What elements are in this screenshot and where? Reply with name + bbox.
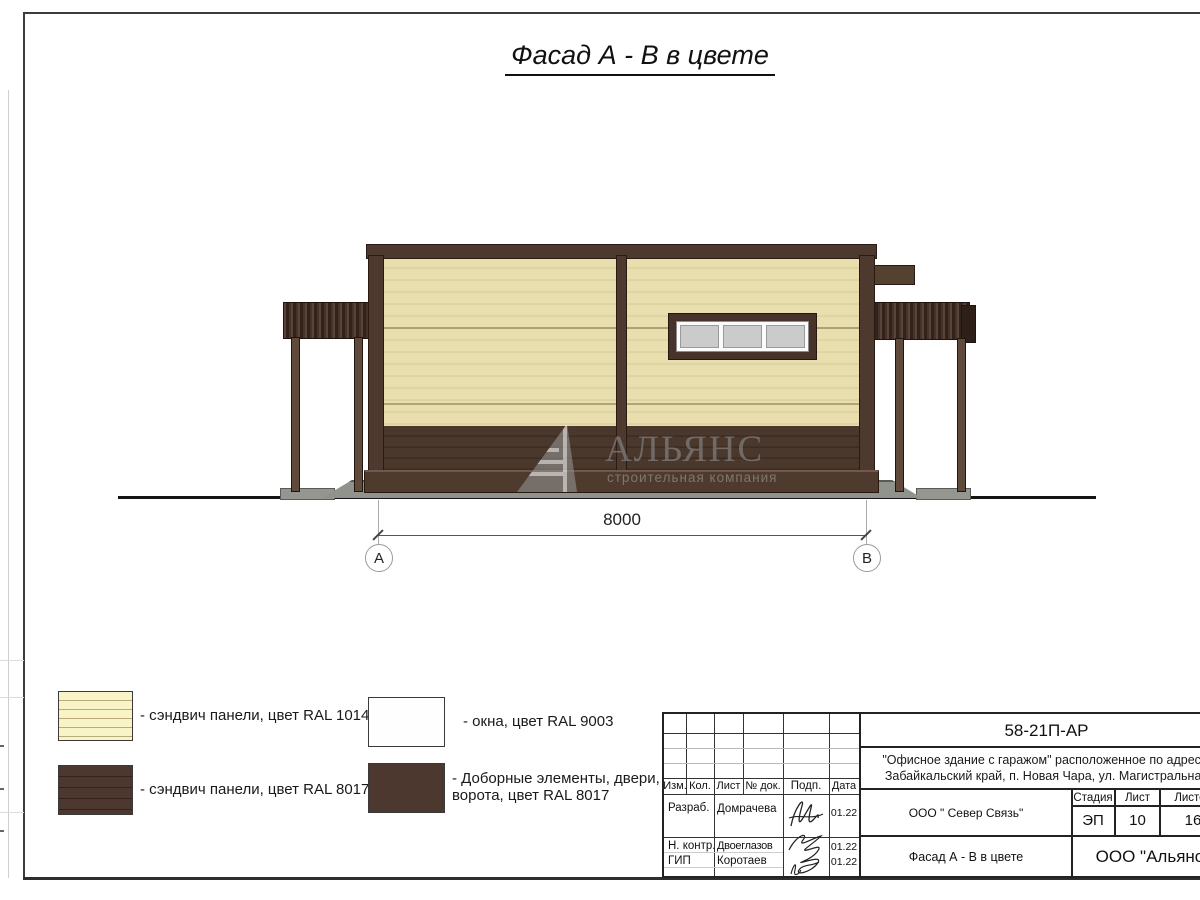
legend-label-ral1014: - сэндвич панели, цвет RAL 1014	[140, 707, 369, 724]
window-frame	[676, 321, 809, 352]
drawing-sheet: Фасад А - В в цвете	[0, 0, 1200, 900]
tb-line	[664, 748, 859, 749]
tb-sheet-value: 10	[1116, 807, 1159, 833]
tb-doc-number: 58-21П-АР	[861, 718, 1200, 744]
corner-pilaster-right	[859, 255, 875, 472]
tb-sheet-title: Фасад А - В в цвете	[861, 837, 1071, 876]
title-block: Изм. Кол. Лист № док. Подп. Дата Разраб.…	[662, 712, 1200, 878]
tb-col-data: Дата	[829, 778, 859, 794]
canopy-post	[291, 337, 300, 492]
extension-line-b	[866, 500, 867, 545]
tb-stage-header: Стадия	[1072, 790, 1114, 805]
tb-line	[664, 763, 859, 764]
frame-top-border	[23, 12, 1200, 14]
canopy-post	[354, 337, 363, 492]
margin-table-rule	[0, 812, 24, 813]
legend-swatch-windows	[368, 697, 445, 747]
canopy-post	[957, 338, 966, 492]
legend-swatch-brown-panels	[58, 765, 133, 815]
page-title-text: Фасад А - В в цвете	[505, 40, 775, 76]
legend-item-label: - окна, цвет RAL 9003	[463, 697, 613, 745]
tb-col-izm: Изм.	[664, 778, 686, 794]
tb-line	[664, 837, 859, 838]
axis-marker-b-label: В	[862, 550, 872, 567]
page-title: Фасад А - В в цвете	[340, 40, 940, 71]
tb-stage-value: ЭП	[1072, 807, 1114, 833]
tb-line	[664, 733, 859, 734]
legend-label-ral9003: - окна, цвет RAL 9003	[463, 713, 613, 730]
extension-line-a	[378, 500, 379, 545]
tb-col-kol: Кол.	[686, 778, 714, 794]
tb-col-doc: № док.	[743, 778, 783, 794]
canopy-post	[895, 338, 904, 492]
tb-line	[664, 867, 783, 868]
tb-address-line1: "Офисное здание с гаражом" расположенное…	[882, 752, 1200, 768]
canopy-roof-right	[872, 302, 970, 340]
legend-label-ral8017: - сэндвич панели, цвет RAL 8017	[140, 781, 369, 798]
watermark: АЛЬЯНС строительная компания	[505, 418, 795, 496]
frame-left-border	[23, 12, 25, 880]
tb-line	[664, 852, 783, 853]
margin-table-rule	[0, 660, 24, 661]
tb-sheet-header: Лист	[1116, 790, 1159, 805]
watermark-name: АЛЬЯНС	[605, 428, 764, 471]
tb-address-line2: Забайкальский край, п. Новая Чара, ул. М…	[885, 768, 1200, 784]
tb-sheets-header: Листов	[1161, 790, 1200, 805]
watermark-subtitle: строительная компания	[607, 470, 778, 485]
tb-role-gip: ГИП	[668, 855, 691, 867]
window	[668, 313, 817, 360]
legend-swatch-cream-panels	[58, 691, 133, 741]
signature-ncontr-gip	[783, 830, 829, 880]
legend-item-label: - Доборные элементы, двери, ворота, цвет…	[452, 763, 660, 811]
canopy-pad-left	[280, 488, 335, 500]
corner-pilaster-left	[368, 255, 384, 472]
tb-address: "Офисное здание с гаражом" расположенное…	[861, 750, 1200, 786]
tb-company: ООО "Альянс"	[1073, 837, 1200, 876]
tb-date-razrab: 01.22	[829, 806, 859, 820]
axis-marker-a-label: А	[374, 550, 384, 567]
window-pane	[680, 325, 719, 348]
roof-beam-right	[870, 265, 915, 285]
canopy-roof-left	[283, 302, 371, 339]
tb-date-ncontr: 01.22	[829, 840, 859, 854]
legend-item-label: - сэндвич панели, цвет RAL 1014	[140, 691, 369, 739]
axis-marker-a: А	[365, 544, 393, 572]
window-pane	[766, 325, 805, 348]
tb-col-list: Лист	[714, 778, 743, 794]
legend-swatch-doors	[368, 763, 445, 813]
tb-col-podp: Подп.	[783, 778, 829, 794]
tb-date-gip: 01.22	[829, 855, 859, 869]
watermark-sail-logo	[511, 420, 599, 494]
margin-text-fragment	[0, 788, 4, 790]
signature-razrab	[785, 794, 827, 834]
tb-role-ncontr: Н. контр.	[668, 840, 715, 852]
tb-sheets-value: 16	[1161, 807, 1200, 833]
margin-text-fragment	[0, 830, 4, 832]
tb-role-razrab: Разраб.	[668, 802, 709, 814]
dimension-line	[378, 535, 867, 536]
tb-name-ncontr: Двоеглазов	[717, 840, 772, 852]
tb-client: ООО " Север Связь"	[861, 790, 1071, 835]
tb-line	[664, 794, 859, 795]
margin-table-rule	[0, 697, 24, 698]
margin-text-fragment	[0, 745, 4, 747]
tb-name-gip: Коротаев	[717, 855, 767, 867]
legend-label-doors: - Доборные элементы, двери, ворота, цвет…	[452, 770, 660, 804]
margin-table-line	[8, 90, 9, 878]
dimension-value: 8000	[522, 510, 722, 530]
window-pane	[723, 325, 762, 348]
legend-item-label: - сэндвич панели, цвет RAL 8017	[140, 765, 369, 813]
tb-line	[859, 746, 1200, 748]
tb-name-razrab: Домрачева	[717, 803, 777, 815]
axis-marker-b: В	[853, 544, 881, 572]
